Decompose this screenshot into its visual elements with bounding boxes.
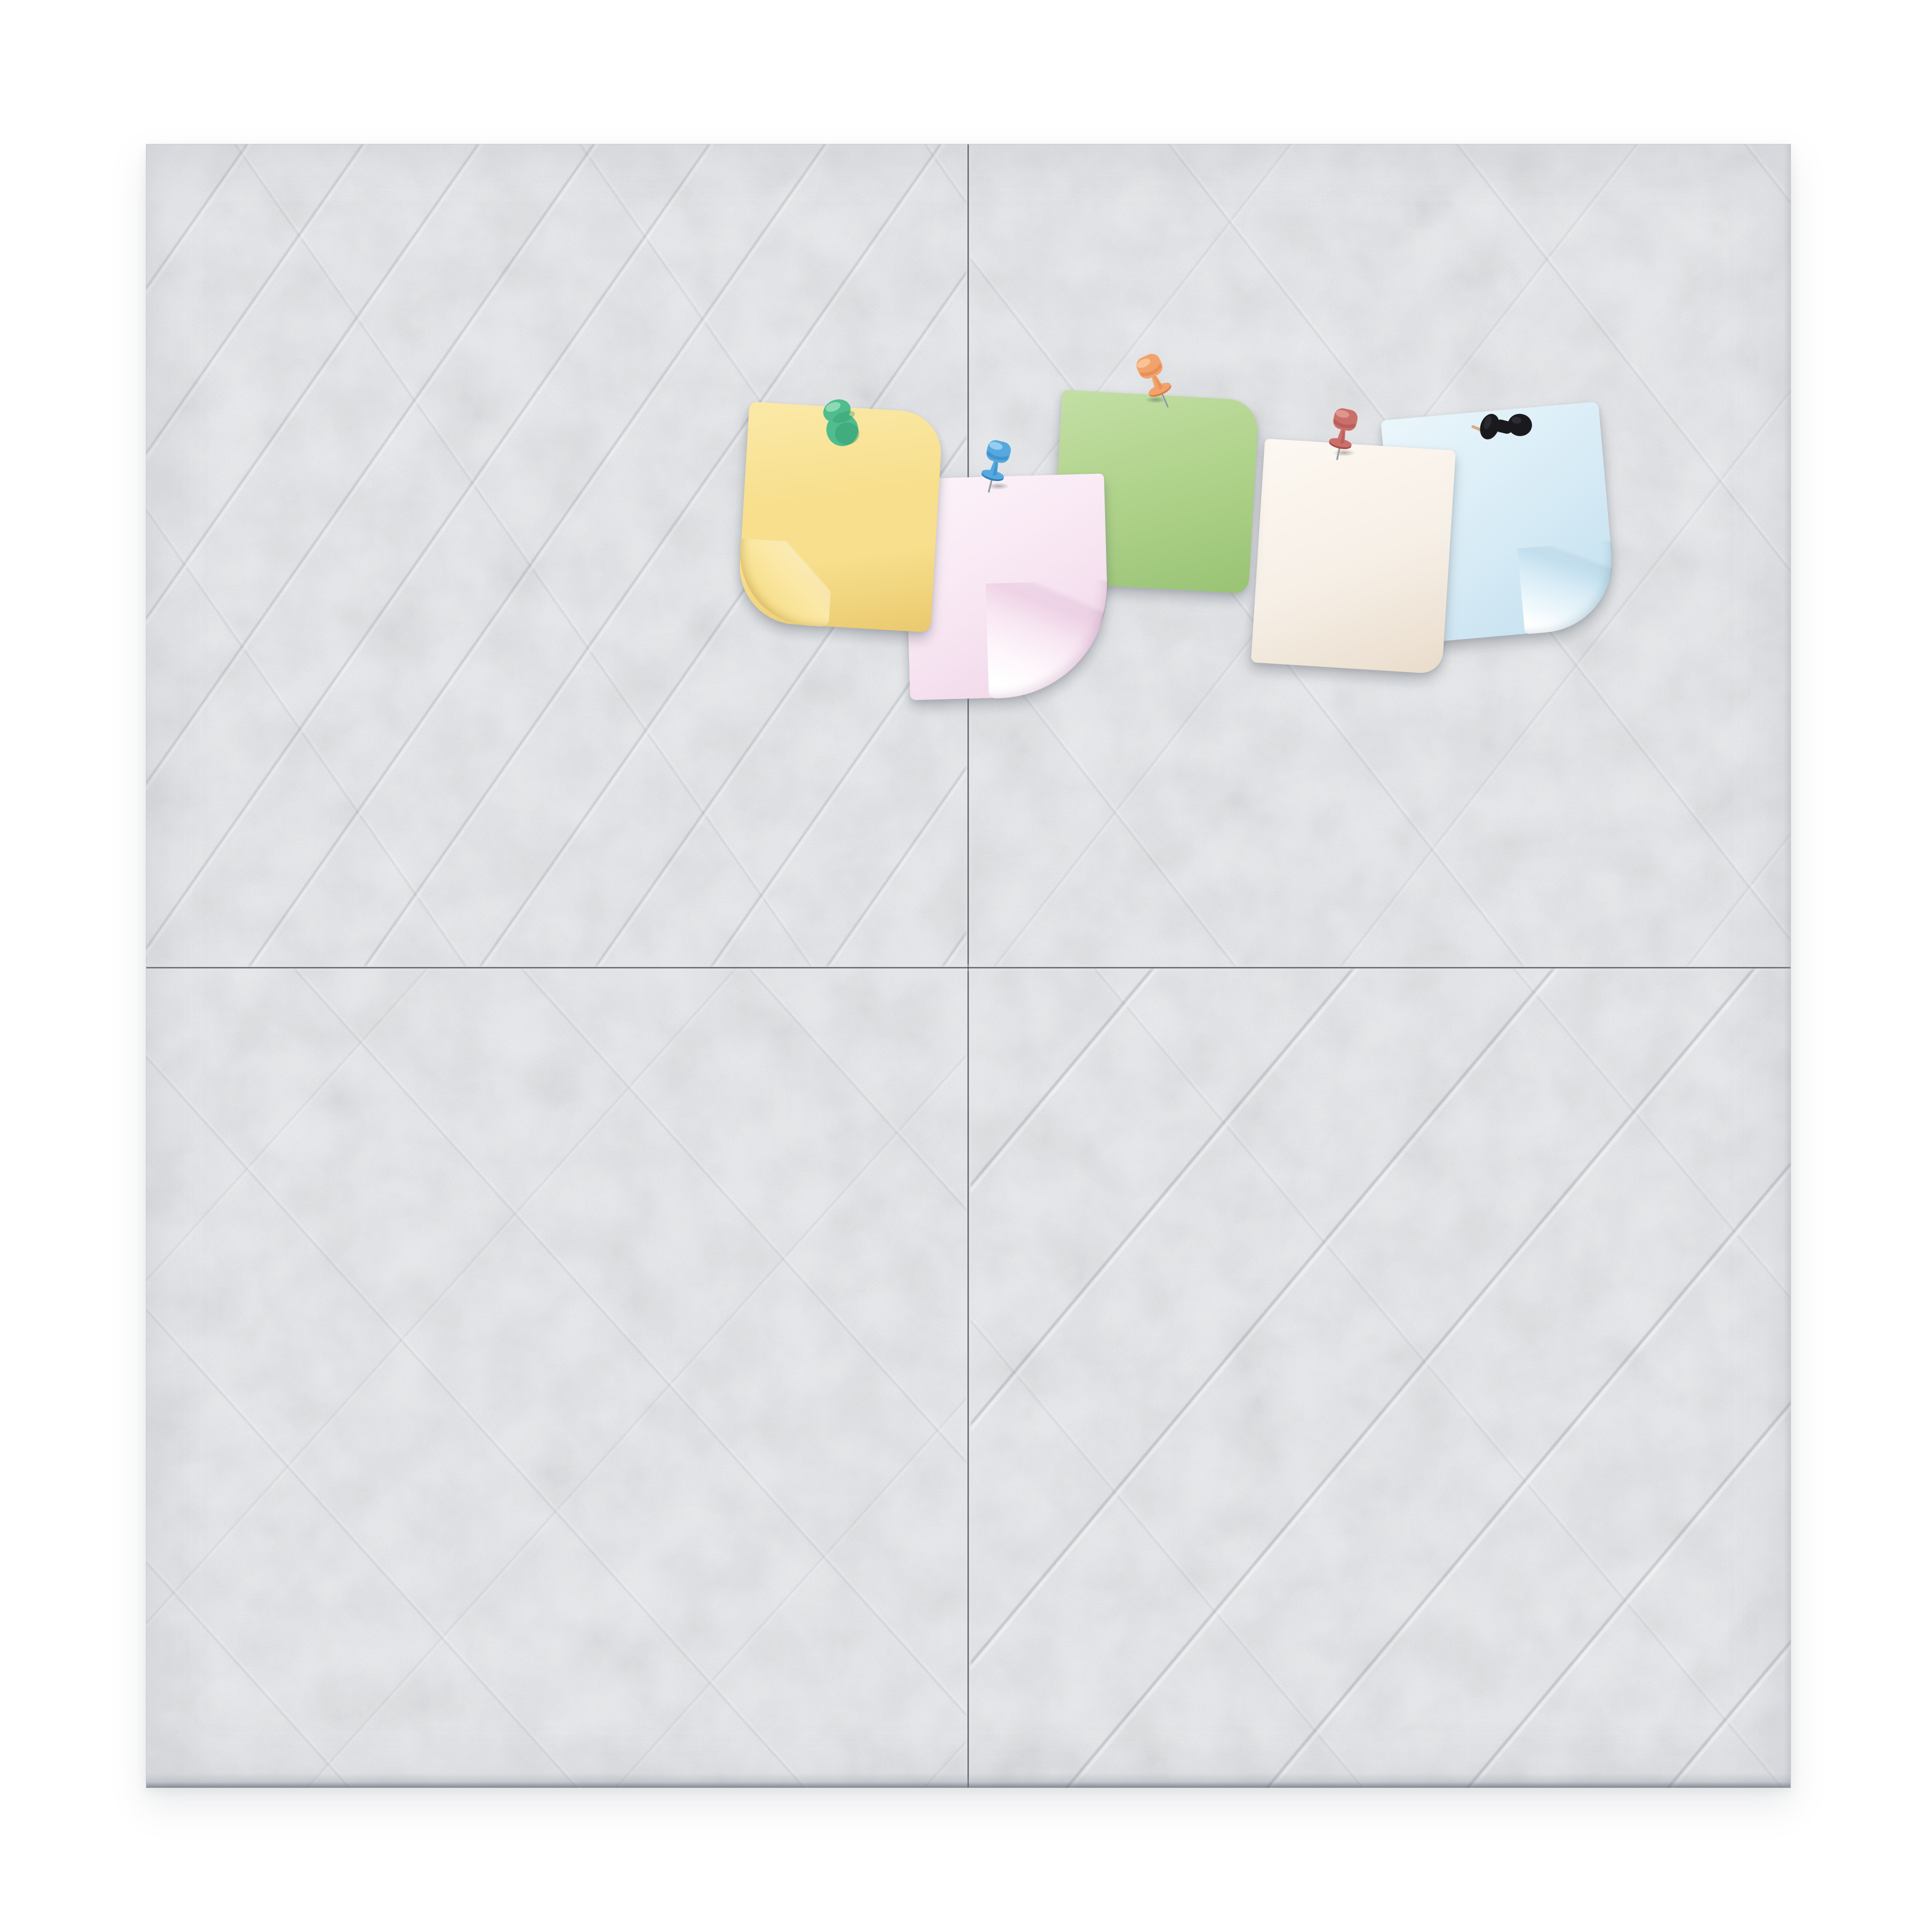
note-paper [1251,439,1456,674]
product-photo-stage [0,0,1932,1932]
green-round-pushpin-icon[interactable] [812,390,868,452]
black-spool-pushpin-icon[interactable] [1468,402,1536,453]
felt-pin-board-panel [146,144,1791,1788]
panel-seam-horizontal [146,967,1790,968]
felt-tile-bottom-left [146,968,966,1788]
panel-right-edge [1784,144,1790,1788]
panel-bottom-edge [146,1773,1790,1788]
felt-tile-bottom-right [970,968,1790,1788]
sticky-note-cream[interactable] [1251,439,1456,674]
panel-seam-vertical [967,144,969,1788]
